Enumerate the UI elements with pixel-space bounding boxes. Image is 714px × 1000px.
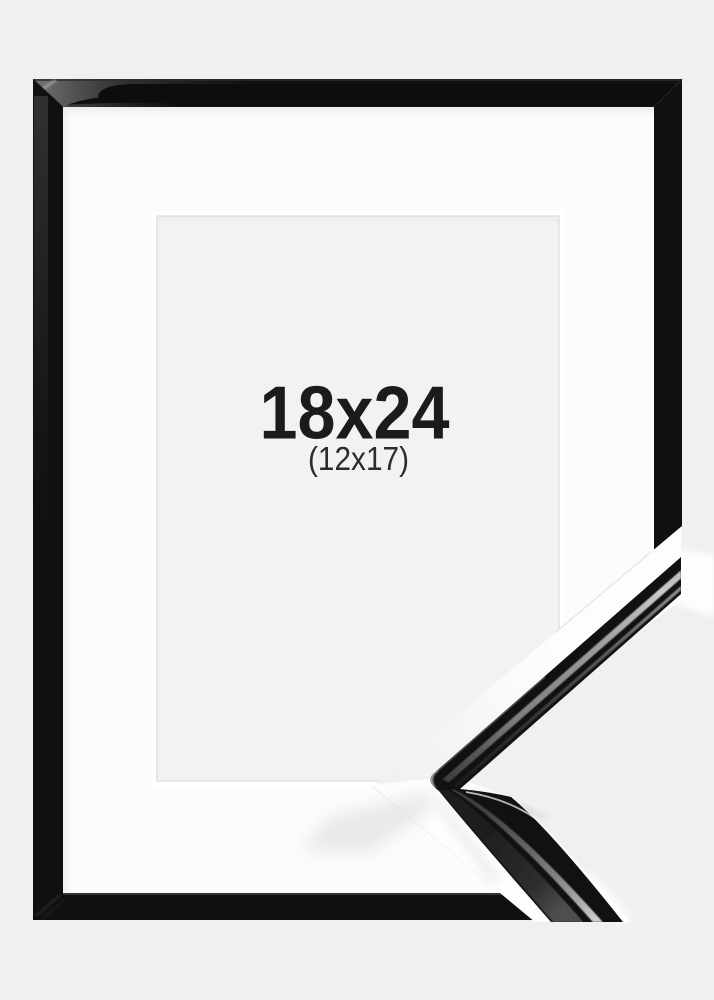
- svg-text:(12x17): (12x17): [308, 440, 409, 477]
